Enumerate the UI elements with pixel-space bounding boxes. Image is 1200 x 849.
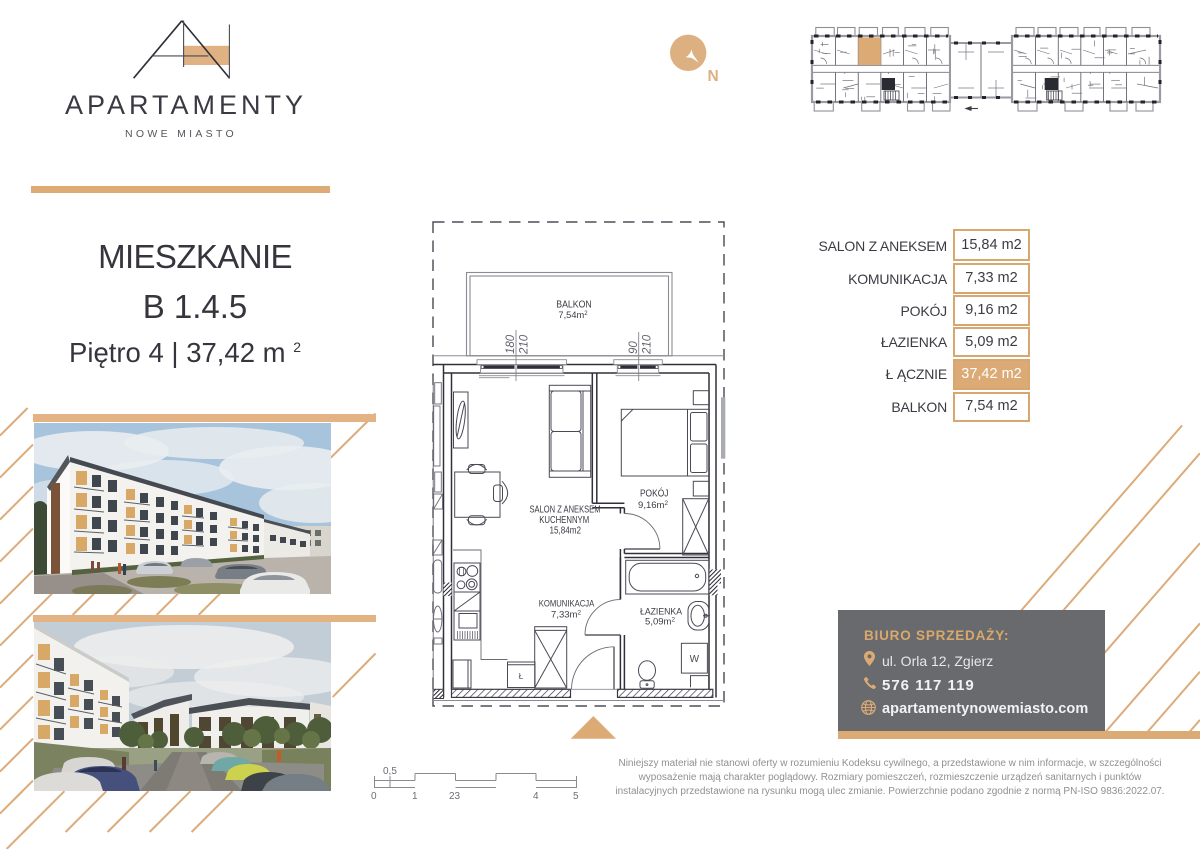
svg-text:210: 210 — [642, 334, 654, 355]
svg-text:9,16m2: 9,16m2 — [638, 500, 668, 511]
svg-text:SALON Z ANEKSEM: SALON Z ANEKSEM — [530, 505, 601, 516]
svg-text:Ł: Ł — [519, 672, 524, 681]
svg-text:210: 210 — [519, 334, 531, 355]
svg-text:7,33m2: 7,33m2 — [551, 610, 581, 621]
svg-text:1: 1 — [412, 791, 418, 802]
svg-text:23: 23 — [449, 791, 461, 802]
svg-text:5: 5 — [573, 791, 579, 802]
svg-text:180: 180 — [505, 334, 517, 354]
svg-text:POKÓJ: POKÓJ — [640, 487, 669, 500]
svg-text:15,84m2: 15,84m2 — [550, 525, 582, 536]
svg-text:4: 4 — [533, 791, 539, 802]
svg-text:KOMUNIKACJA: KOMUNIKACJA — [539, 599, 595, 609]
svg-text:5,09m2: 5,09m2 — [645, 617, 675, 628]
svg-text:BALKON: BALKON — [556, 299, 591, 310]
svg-text:W: W — [690, 654, 700, 665]
svg-text:0,5: 0,5 — [383, 766, 397, 777]
svg-text:0: 0 — [371, 791, 377, 802]
svg-text:7,54m2: 7,54m2 — [558, 310, 588, 320]
svg-text:N: N — [708, 68, 719, 85]
svg-text:90: 90 — [628, 341, 640, 354]
svg-text:APARTAMENTY: APARTAMENTY — [65, 90, 307, 120]
svg-text:NOWE MIASTO: NOWE MIASTO — [125, 128, 237, 140]
